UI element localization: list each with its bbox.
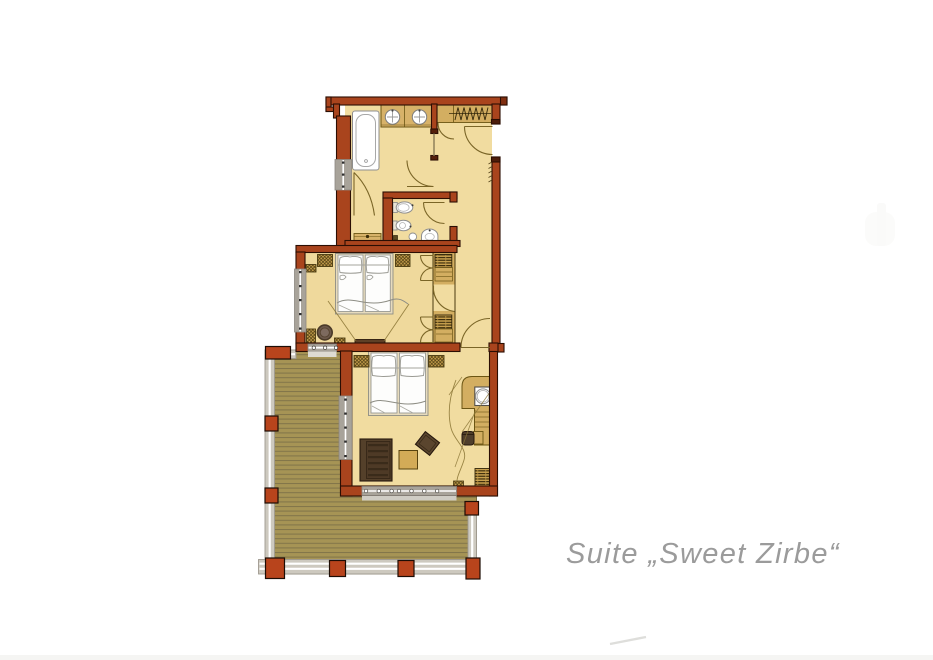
svg-text:Suite „Sweet Zirbe“: Suite „Sweet Zirbe“ [566,538,840,570]
